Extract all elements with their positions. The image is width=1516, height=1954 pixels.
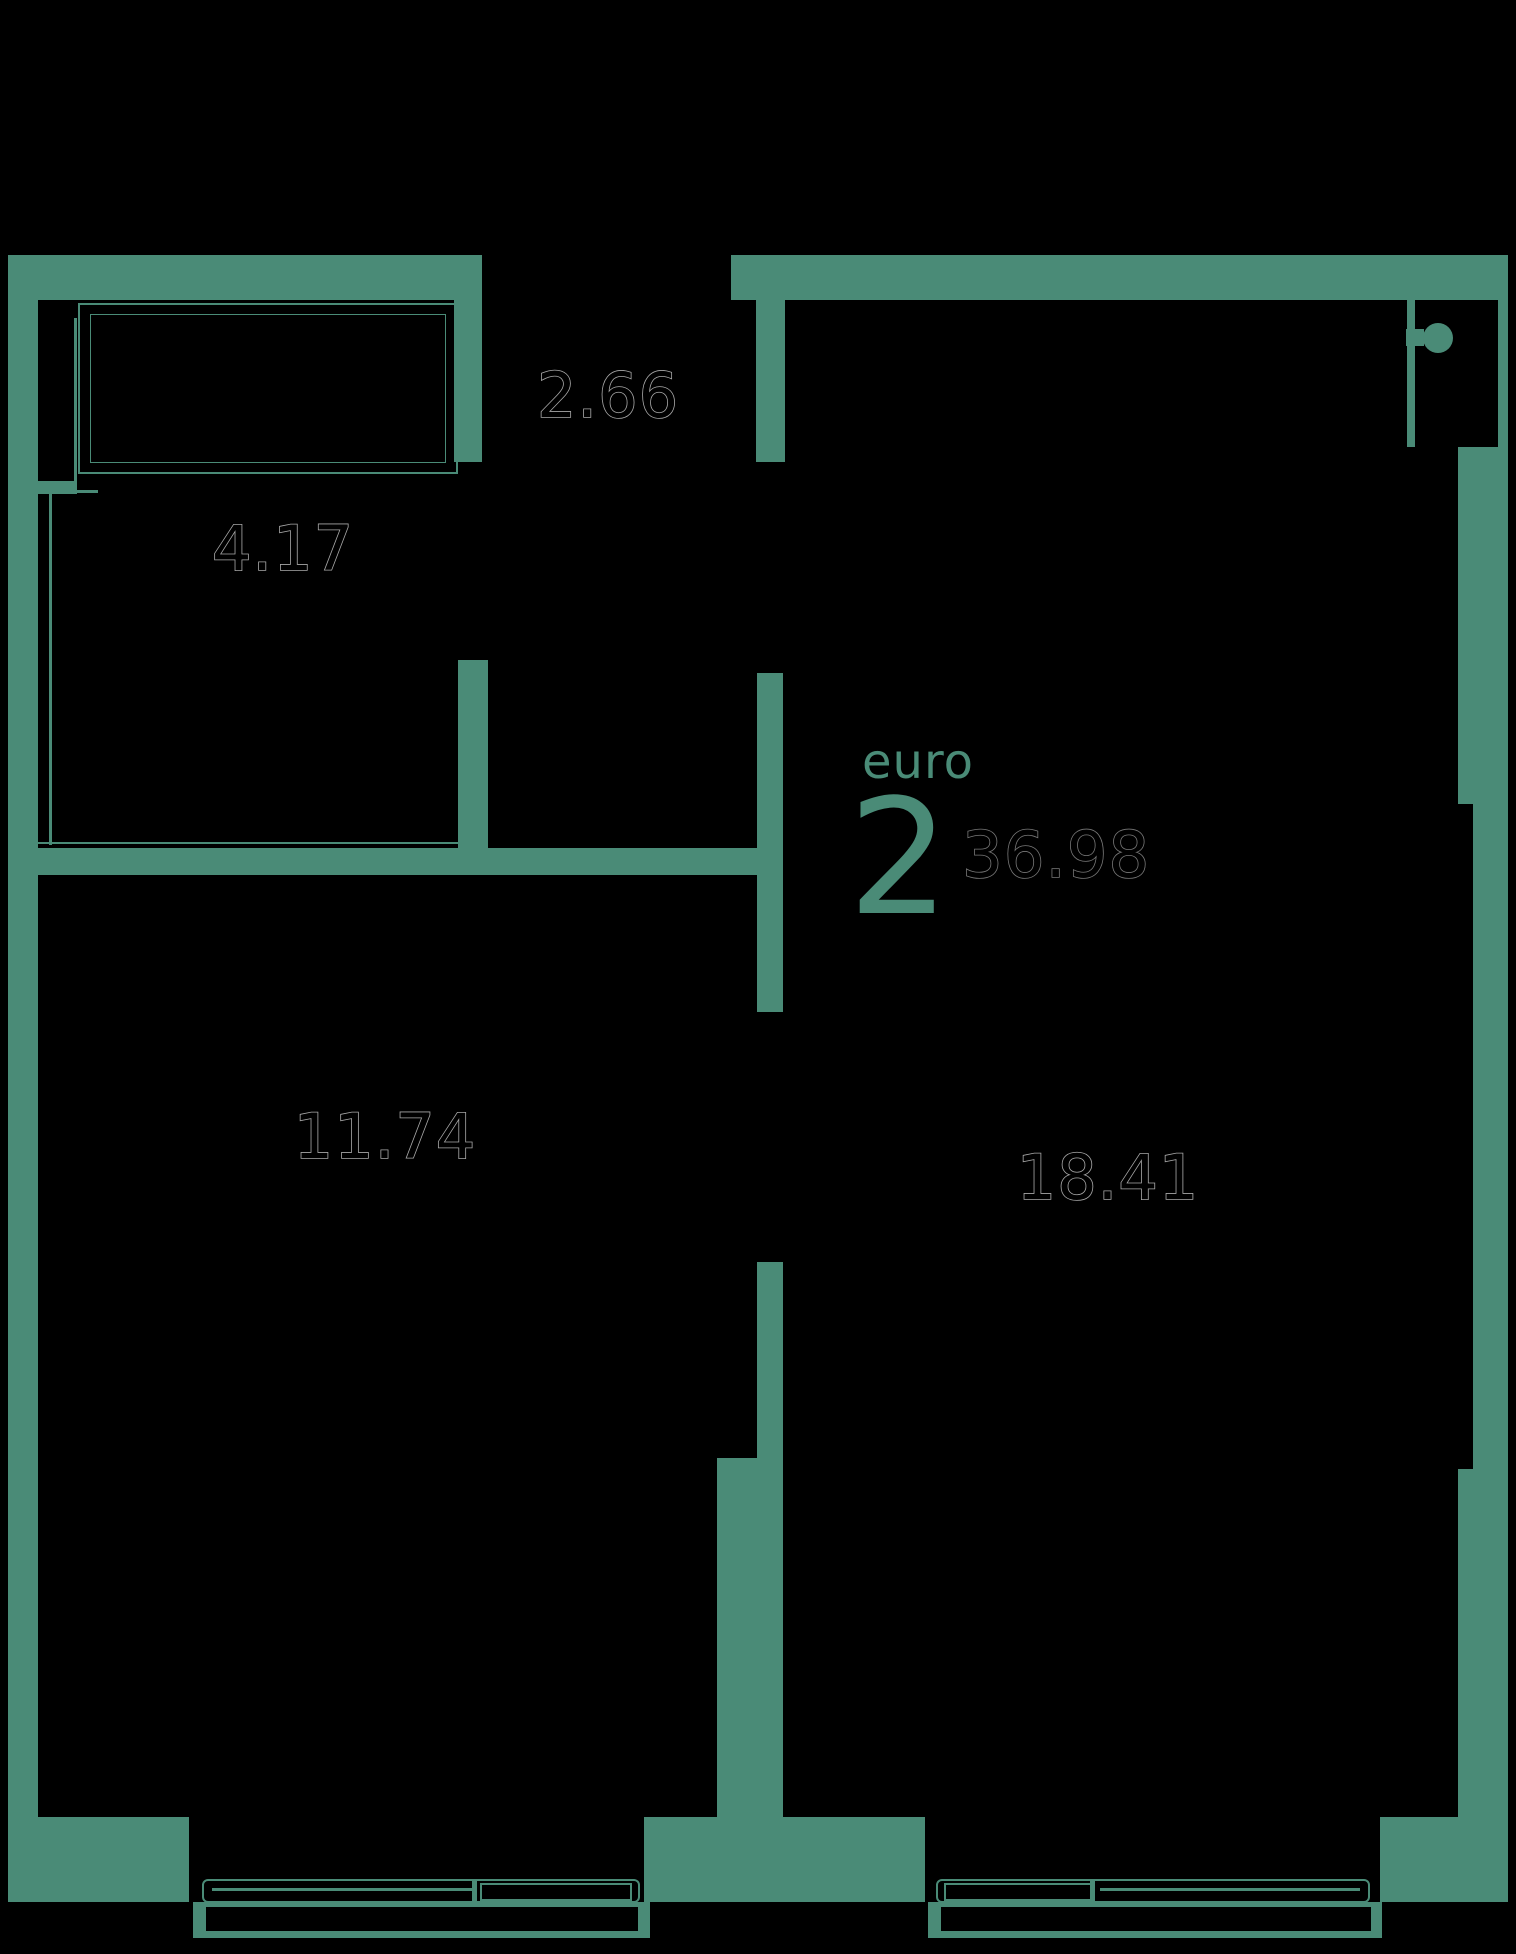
wall-mid-inner-line bbox=[38, 842, 462, 844]
window-sash-left bbox=[480, 1883, 632, 1901]
entrance-door-jamb bbox=[1407, 300, 1415, 447]
wardrobe-lower-line-h bbox=[49, 490, 98, 493]
door-handle bbox=[1406, 329, 1424, 346]
room-label-loggia: 2.66 bbox=[537, 365, 679, 427]
wall-center-seg-mid bbox=[757, 673, 783, 1012]
wall-right-c bbox=[1458, 1469, 1508, 1817]
window-glass-line-right bbox=[1100, 1888, 1360, 1891]
plan-room-count: 2 bbox=[848, 778, 950, 938]
wall-left bbox=[8, 255, 38, 1902]
window-glass-line-left bbox=[212, 1888, 472, 1891]
wardrobe-outline-inner bbox=[90, 314, 446, 463]
plan-total-area: 36.98 bbox=[962, 824, 1150, 888]
wall-top-left bbox=[8, 255, 482, 300]
entrance-door-leaf bbox=[1415, 300, 1475, 442]
door-knob-icon bbox=[1423, 323, 1453, 353]
wall-wardrobe-right-bottom bbox=[458, 660, 488, 848]
window-divider-left bbox=[472, 1881, 477, 1901]
wall-mid-horizontal bbox=[38, 848, 783, 875]
wardrobe-lower-line-v bbox=[49, 490, 52, 845]
window-sill-left bbox=[206, 1907, 638, 1931]
wall-center-seg-wide bbox=[717, 1458, 783, 1817]
wall-wardrobe-right-top bbox=[454, 300, 482, 462]
room-label-living-kitchen: 18.41 bbox=[1017, 1147, 1200, 1209]
window-sash-right bbox=[944, 1883, 1092, 1901]
window-divider-right bbox=[1090, 1881, 1095, 1901]
wall-right-upper bbox=[1498, 300, 1508, 447]
room-label-bedroom: 11.74 bbox=[294, 1106, 477, 1168]
wall-center-seg-low bbox=[757, 1262, 783, 1458]
wall-center-seg-top bbox=[756, 300, 785, 462]
floor-plan: 4.17 2.66 11.74 18.41 euro 2 36.98 bbox=[0, 0, 1516, 1954]
wall-top-right bbox=[731, 255, 1508, 300]
room-label-wardrobe: 4.17 bbox=[212, 518, 354, 580]
wall-right-a bbox=[1458, 447, 1508, 804]
wall-right-b bbox=[1473, 804, 1508, 1469]
shaft-niche-line bbox=[74, 318, 77, 481]
window-sill-right bbox=[941, 1907, 1371, 1931]
